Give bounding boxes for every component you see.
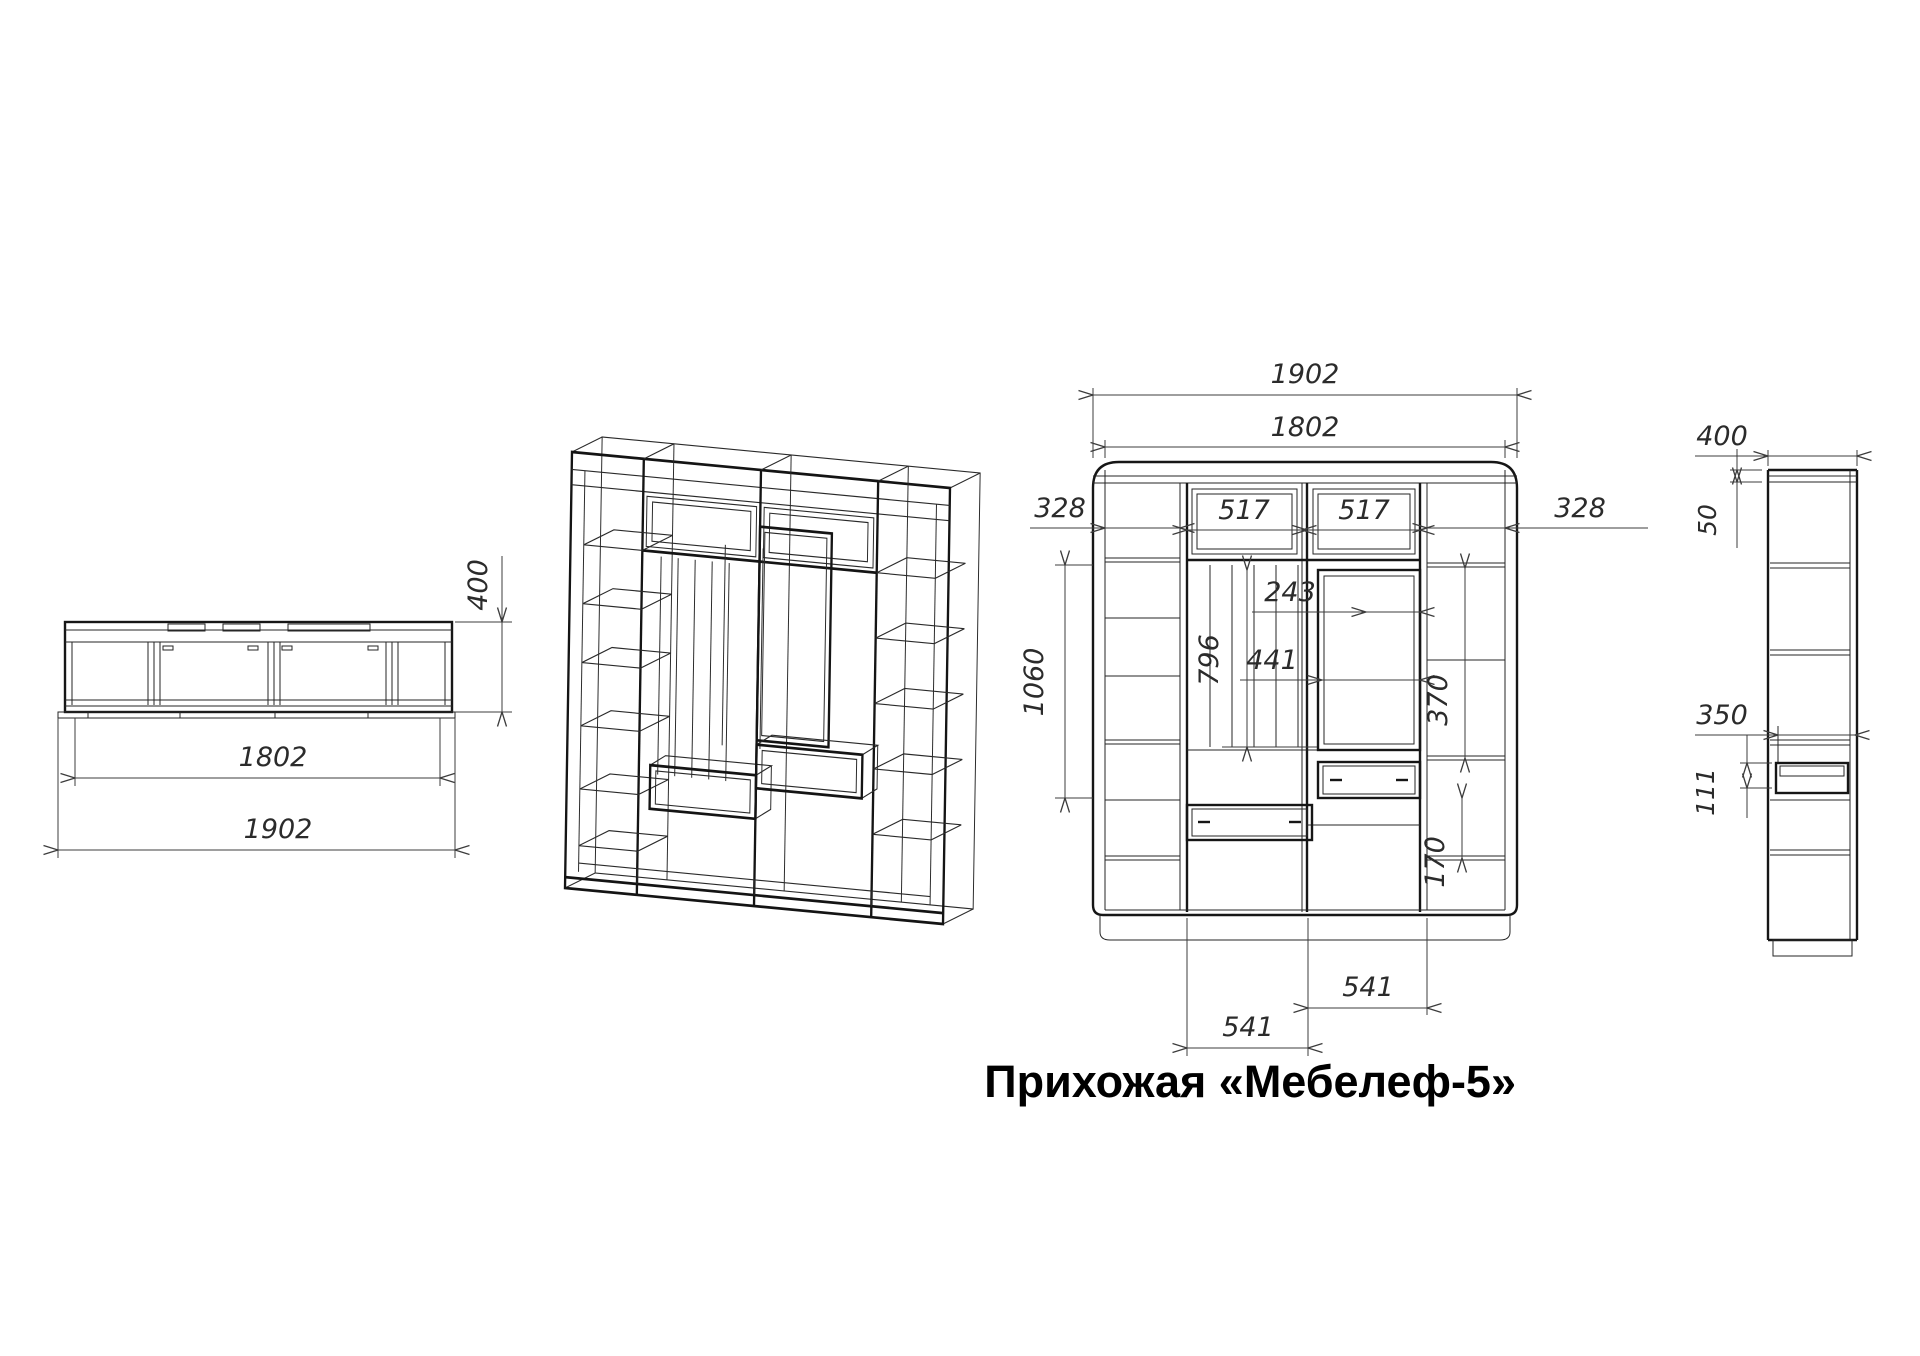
dim-front-drawer-right-width: 541 <box>1308 918 1427 1015</box>
dim-front-left-height: 1060 <box>1019 565 1093 798</box>
side-view <box>1768 470 1857 956</box>
drawing-title: Прихожая «Мебелеф-5» <box>0 1056 1516 1108</box>
dim-label-front-370: 370 <box>1423 674 1454 726</box>
dim-front-center-right: 517 <box>1307 495 1420 530</box>
plan-view <box>58 622 455 718</box>
dim-side-shelf-depth: 350 <box>1695 700 1855 735</box>
dim-plan-outer-width: 1902 <box>58 718 455 858</box>
dim-side-depth: 400 <box>1695 421 1857 466</box>
dim-label-front-1902: 1902 <box>1271 359 1340 390</box>
technical-drawing: 1802 1902 400 <box>0 0 1920 1356</box>
dim-label-side-350: 350 <box>1696 700 1748 731</box>
dim-label-front-328-left: 328 <box>1034 493 1086 524</box>
dim-label-side-400: 400 <box>1696 421 1748 452</box>
dim-label-front-243: 243 <box>1264 577 1316 608</box>
dim-label-side-111: 111 <box>1691 768 1720 816</box>
dim-front-right-section: 328 <box>1427 493 1648 528</box>
dim-label-front-541-right: 541 <box>1342 972 1394 1003</box>
dim-label-front-541-left: 541 <box>1222 1012 1274 1043</box>
dim-front-shelf-gap: 370 <box>1423 568 1465 758</box>
drawing-sheet: 1802 1902 400 <box>0 0 1920 1356</box>
plan-dimensions: 1802 1902 400 <box>58 556 512 858</box>
dim-label-front-1802: 1802 <box>1271 412 1340 443</box>
dim-label-front-796: 796 <box>1194 634 1225 686</box>
dim-side-top-panel: 50 <box>1693 449 1762 548</box>
dim-label-front-1060: 1060 <box>1019 648 1050 717</box>
dim-plan-depth: 400 <box>455 556 512 712</box>
dim-side-drawer-height: 111 <box>1691 735 1772 818</box>
side-dimensions: 400 50 350 111 <box>1691 421 1857 818</box>
dim-label-plan-1802: 1802 <box>239 742 308 773</box>
dim-front-body-width: 1802 <box>1105 412 1505 458</box>
dim-front-drawer-left-width: 541 <box>1187 918 1308 1056</box>
dim-label-plan-400: 400 <box>463 559 494 611</box>
isometric-view <box>565 434 980 927</box>
dim-label-side-50: 50 <box>1693 504 1722 536</box>
dim-front-hook-gap: 243 <box>1252 577 1420 612</box>
dim-plan-inner-width: 1802 <box>75 718 440 786</box>
dim-label-front-170: 170 <box>1420 836 1451 888</box>
dim-front-overall-width: 1902 <box>1093 359 1517 458</box>
dim-label-front-441: 441 <box>1246 645 1298 676</box>
dim-label-front-517a: 517 <box>1218 495 1270 526</box>
dim-front-mirror-width: 441 <box>1240 645 1420 680</box>
dim-label-front-328-right: 328 <box>1554 493 1606 524</box>
dim-label-plan-1902: 1902 <box>244 814 313 845</box>
dim-front-drawer-front: 170 <box>1420 798 1462 888</box>
dim-front-center-left: 517 <box>1187 495 1302 530</box>
dim-label-front-517b: 517 <box>1338 495 1390 526</box>
